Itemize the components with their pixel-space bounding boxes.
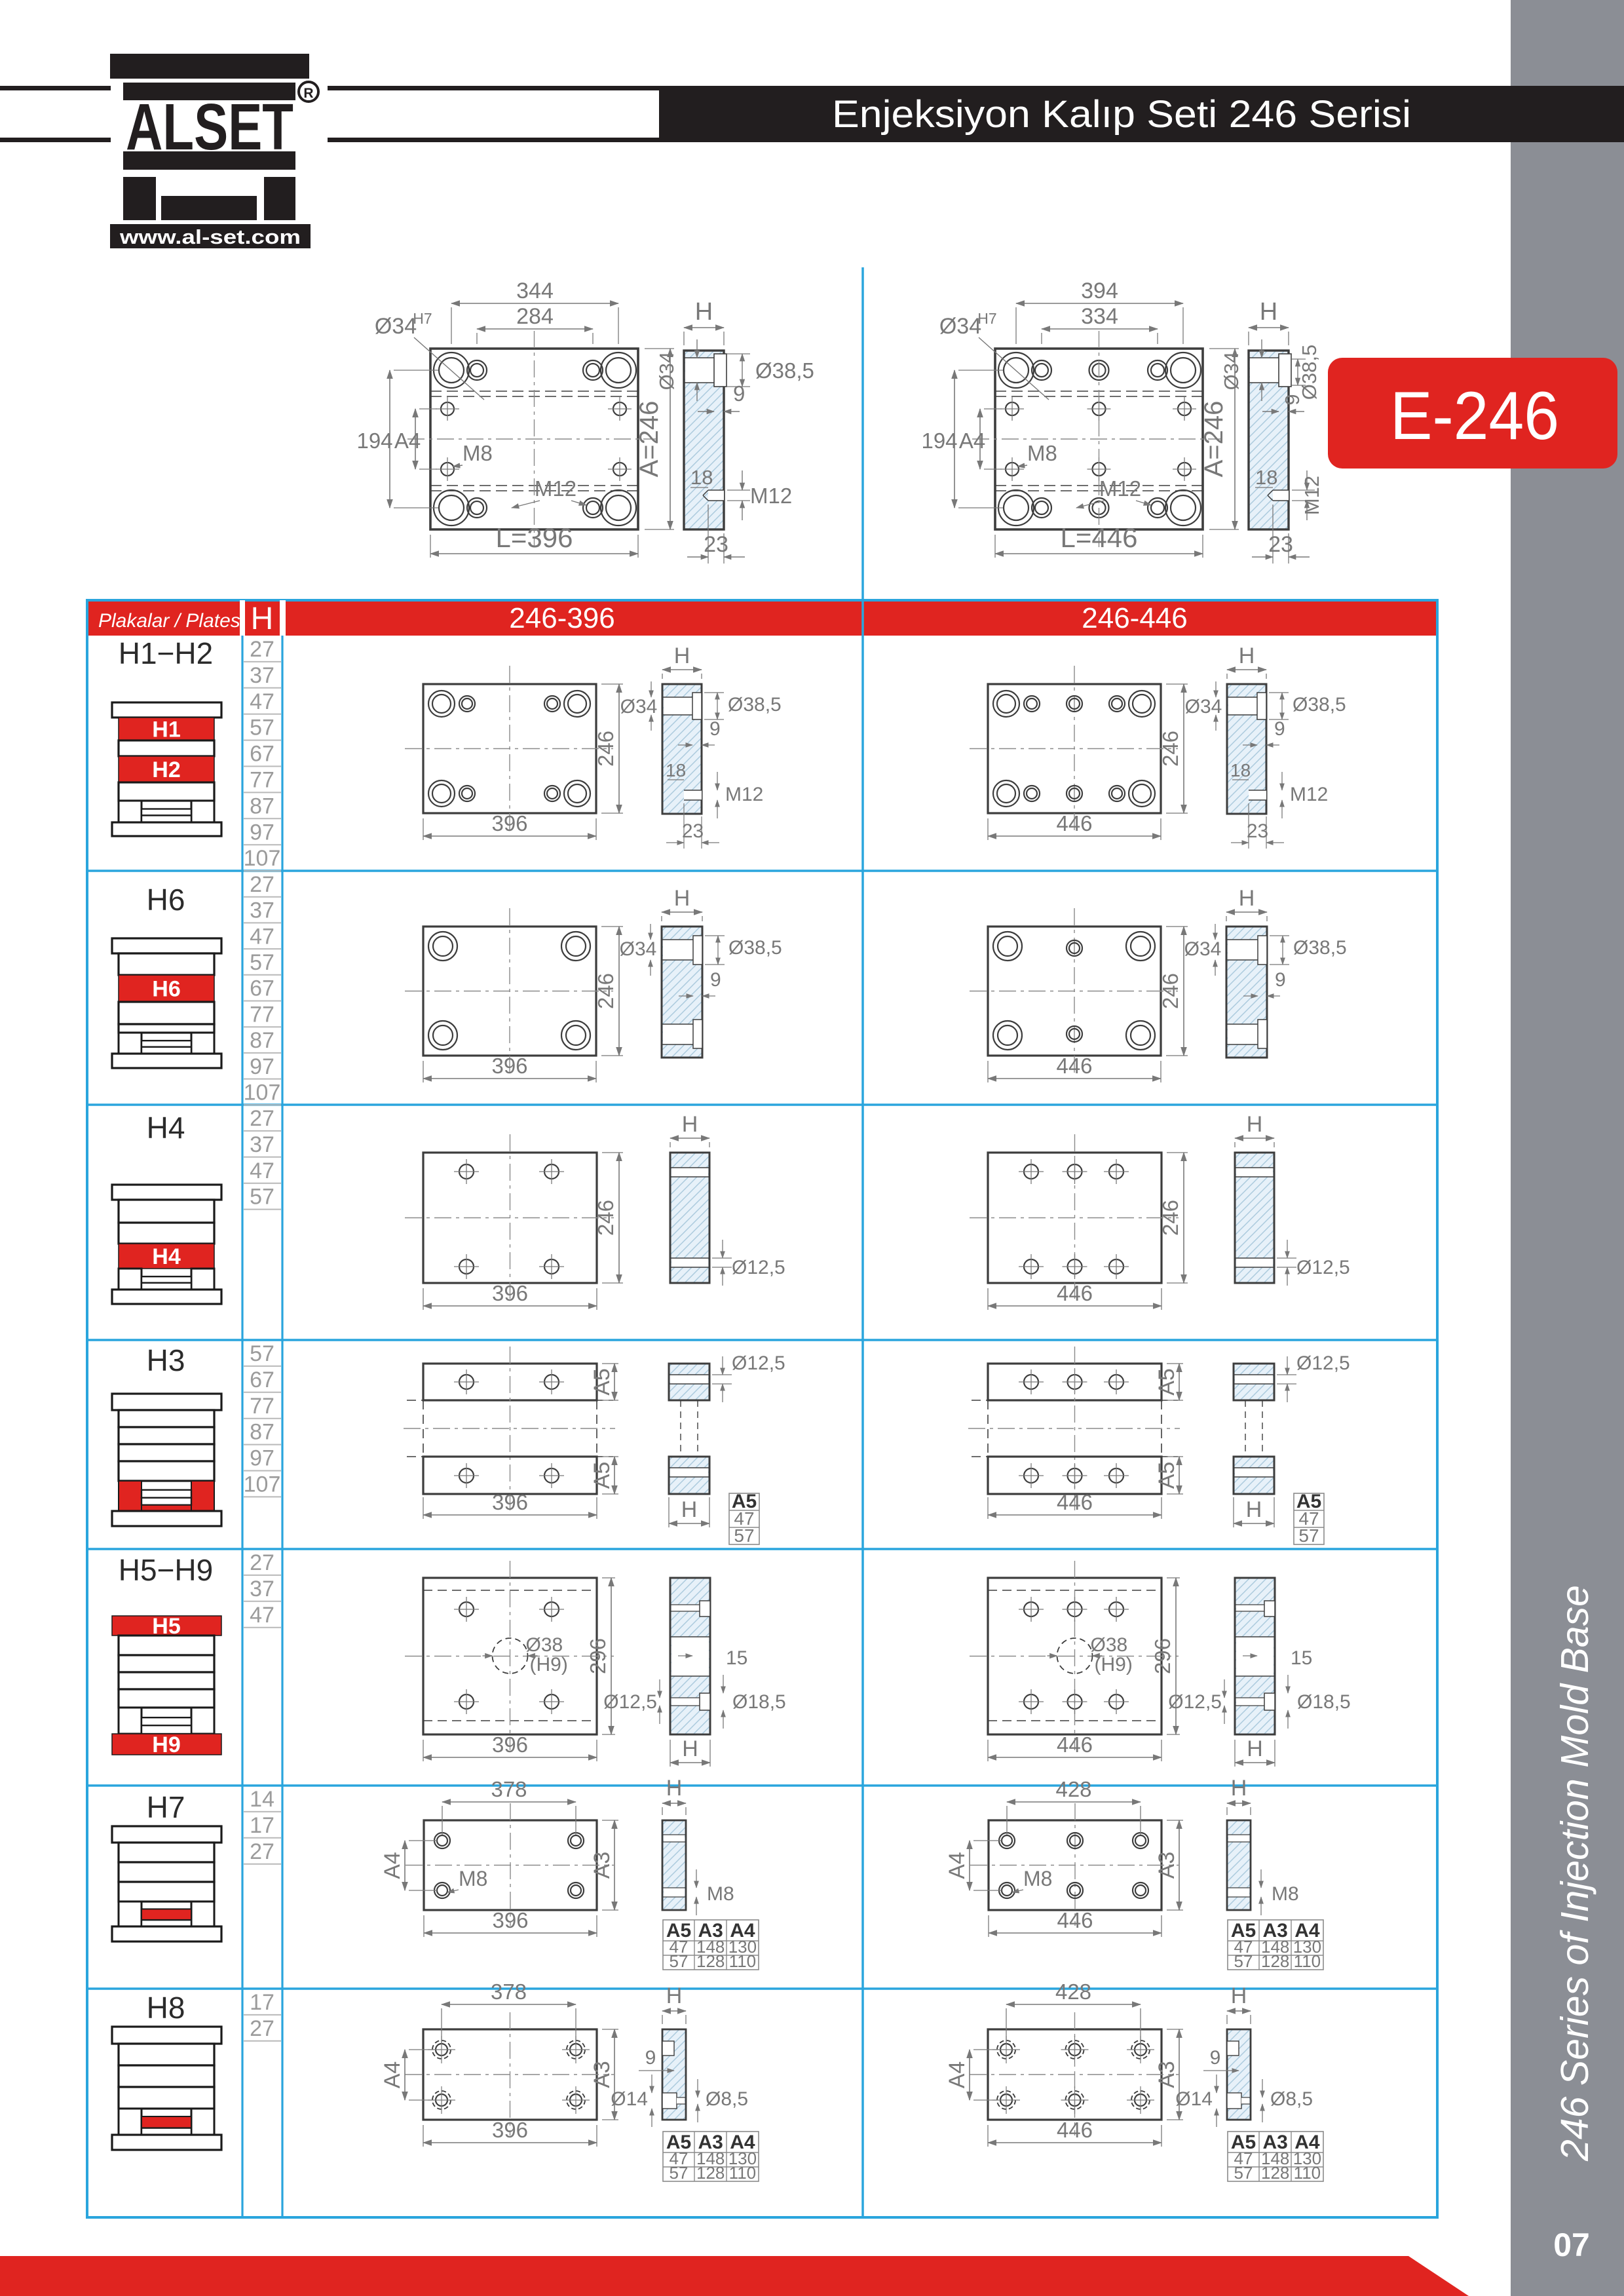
svg-text:128: 128 bbox=[1261, 2163, 1289, 2183]
svg-text:Ø12,5: Ø12,5 bbox=[1296, 1257, 1350, 1278]
svg-text:57: 57 bbox=[1234, 1951, 1253, 1971]
svg-text:446: 446 bbox=[1056, 811, 1092, 835]
svg-text:9: 9 bbox=[1275, 969, 1286, 991]
svg-text:67: 67 bbox=[250, 742, 274, 767]
svg-text:18: 18 bbox=[1255, 466, 1277, 489]
svg-text:87: 87 bbox=[250, 1420, 274, 1445]
svg-text:H9: H9 bbox=[152, 1732, 180, 1757]
svg-text:07: 07 bbox=[1553, 2227, 1590, 2263]
svg-text:M8: M8 bbox=[1023, 1867, 1052, 1890]
svg-text:Ø8,5: Ø8,5 bbox=[706, 2088, 748, 2110]
svg-text:A4: A4 bbox=[380, 1852, 405, 1879]
svg-text:246: 246 bbox=[1158, 1200, 1182, 1236]
svg-text:27: 27 bbox=[250, 637, 274, 662]
svg-text:Ø38,5: Ø38,5 bbox=[1293, 937, 1347, 959]
svg-text:378: 378 bbox=[491, 1777, 527, 1801]
svg-text:(H9): (H9) bbox=[1095, 1654, 1133, 1675]
svg-text:15: 15 bbox=[726, 1647, 747, 1669]
svg-text:Ø34: Ø34 bbox=[620, 938, 657, 960]
svg-text:Plakalar / Plates: Plakalar / Plates bbox=[98, 610, 240, 632]
svg-text:H6: H6 bbox=[147, 883, 185, 917]
svg-text:9: 9 bbox=[733, 381, 745, 406]
svg-text:246: 246 bbox=[594, 1200, 618, 1236]
svg-text:18: 18 bbox=[666, 760, 686, 780]
svg-text:57: 57 bbox=[670, 1951, 689, 1971]
svg-text:23: 23 bbox=[1268, 532, 1293, 557]
svg-text:67: 67 bbox=[250, 1368, 274, 1392]
svg-text:M8: M8 bbox=[707, 1883, 734, 1905]
svg-text:27: 27 bbox=[250, 2016, 274, 2041]
svg-text:M8: M8 bbox=[1272, 1883, 1299, 1905]
svg-text:A4: A4 bbox=[959, 429, 985, 453]
svg-text:Ø38,5: Ø38,5 bbox=[1298, 345, 1321, 400]
svg-text:Ø34: Ø34 bbox=[1184, 938, 1222, 960]
svg-text:23: 23 bbox=[1247, 820, 1268, 842]
svg-text:M8: M8 bbox=[459, 1867, 487, 1890]
svg-text:M8: M8 bbox=[1027, 441, 1057, 465]
svg-text:57: 57 bbox=[1234, 2163, 1253, 2183]
svg-text:394: 394 bbox=[1081, 278, 1118, 303]
svg-text:57: 57 bbox=[250, 1341, 274, 1366]
svg-text:A4: A4 bbox=[945, 2061, 970, 2089]
svg-text:Ø38,5: Ø38,5 bbox=[728, 937, 782, 959]
svg-text:Ø12,5: Ø12,5 bbox=[732, 1257, 785, 1278]
svg-text:87: 87 bbox=[250, 1028, 274, 1053]
svg-text:H3: H3 bbox=[147, 1343, 185, 1377]
svg-text:110: 110 bbox=[729, 1951, 756, 1971]
svg-text:A5: A5 bbox=[1154, 1368, 1179, 1396]
svg-text:H6: H6 bbox=[152, 977, 180, 1002]
svg-text:97: 97 bbox=[250, 820, 274, 845]
svg-text:A3: A3 bbox=[590, 2061, 614, 2088]
svg-text:M12: M12 bbox=[750, 484, 792, 508]
svg-text:396: 396 bbox=[491, 1054, 527, 1078]
svg-text:Ø14: Ø14 bbox=[611, 2088, 648, 2110]
svg-text:A3: A3 bbox=[1154, 1852, 1179, 1879]
svg-text:H: H bbox=[1246, 1497, 1262, 1522]
svg-text:128: 128 bbox=[696, 1951, 725, 1971]
svg-text:246 Series of Injection Mold B: 246 Series of Injection Mold Base bbox=[1553, 1585, 1596, 2162]
svg-text:37: 37 bbox=[250, 1577, 274, 1601]
svg-text:H4: H4 bbox=[147, 1111, 185, 1145]
svg-text:77: 77 bbox=[250, 767, 274, 792]
svg-text:Ø34: Ø34 bbox=[939, 314, 981, 339]
svg-text:284: 284 bbox=[516, 304, 554, 329]
svg-text:Ø38,5: Ø38,5 bbox=[755, 358, 814, 383]
svg-text:Ø34: Ø34 bbox=[620, 696, 658, 717]
svg-text:57: 57 bbox=[250, 1185, 274, 1210]
svg-text:428: 428 bbox=[1055, 1777, 1091, 1801]
svg-text:110: 110 bbox=[1294, 1951, 1321, 1971]
svg-text:Ø12,5: Ø12,5 bbox=[732, 1352, 785, 1374]
svg-text:Ø34: Ø34 bbox=[375, 314, 417, 339]
svg-text:57: 57 bbox=[670, 2163, 689, 2183]
svg-text:Ø18,5: Ø18,5 bbox=[1297, 1691, 1351, 1713]
svg-text:H: H bbox=[682, 1736, 698, 1761]
svg-text:15: 15 bbox=[1291, 1647, 1312, 1669]
svg-text:H: H bbox=[674, 643, 690, 668]
svg-text:A5: A5 bbox=[590, 1368, 614, 1396]
svg-text:(H9): (H9) bbox=[530, 1654, 568, 1675]
svg-text:194: 194 bbox=[921, 429, 957, 453]
svg-text:L=446: L=446 bbox=[1061, 522, 1138, 553]
svg-text:H: H bbox=[1231, 1776, 1247, 1801]
svg-text:H8: H8 bbox=[147, 1991, 185, 2025]
svg-text:Ø38: Ø38 bbox=[1091, 1634, 1128, 1656]
svg-text:77: 77 bbox=[250, 1394, 274, 1419]
svg-text:47: 47 bbox=[250, 924, 274, 949]
svg-text:97: 97 bbox=[250, 1054, 274, 1079]
svg-text:Ø14: Ø14 bbox=[1175, 2088, 1213, 2110]
svg-text:R: R bbox=[303, 86, 313, 101]
svg-text:H: H bbox=[674, 886, 690, 911]
svg-text:H: H bbox=[1260, 298, 1277, 326]
svg-text:A5: A5 bbox=[590, 1462, 614, 1489]
svg-text:9: 9 bbox=[709, 718, 721, 740]
svg-text:H7: H7 bbox=[977, 310, 996, 327]
svg-text:446: 446 bbox=[1057, 1732, 1093, 1757]
svg-text:L=396: L=396 bbox=[496, 522, 573, 553]
svg-text:A=246: A=246 bbox=[1199, 401, 1228, 478]
svg-text:57: 57 bbox=[250, 950, 274, 975]
svg-text:M12: M12 bbox=[725, 784, 763, 805]
svg-text:47: 47 bbox=[250, 1158, 274, 1183]
svg-text:Ø8,5: Ø8,5 bbox=[1270, 2088, 1313, 2110]
svg-text:246-396: 246-396 bbox=[509, 602, 614, 634]
svg-text:246: 246 bbox=[594, 731, 618, 767]
svg-text:77: 77 bbox=[250, 1002, 274, 1027]
svg-text:Ø38,5: Ø38,5 bbox=[1293, 694, 1346, 716]
svg-text:H7: H7 bbox=[413, 310, 432, 327]
svg-text:23: 23 bbox=[704, 532, 728, 557]
svg-text:M12: M12 bbox=[1290, 784, 1328, 805]
svg-text:9: 9 bbox=[1274, 718, 1285, 740]
svg-text:17: 17 bbox=[250, 1990, 274, 2015]
svg-text:378: 378 bbox=[491, 1980, 527, 2004]
svg-text:H: H bbox=[1239, 643, 1255, 668]
svg-text:A4: A4 bbox=[380, 2061, 405, 2089]
svg-text:Ø38,5: Ø38,5 bbox=[728, 694, 782, 716]
svg-text:H: H bbox=[695, 298, 713, 326]
svg-text:37: 37 bbox=[250, 1132, 274, 1157]
svg-text:Enjeksiyon Kalıp Seti 246 Seri: Enjeksiyon Kalıp Seti 246 Serisi bbox=[832, 93, 1411, 136]
svg-text:396: 396 bbox=[492, 1490, 528, 1514]
svg-text:M8: M8 bbox=[463, 441, 493, 465]
svg-text:9: 9 bbox=[1281, 394, 1304, 405]
svg-text:Ø38: Ø38 bbox=[526, 1634, 563, 1656]
svg-text:57: 57 bbox=[734, 1525, 754, 1546]
svg-text:H: H bbox=[251, 602, 274, 636]
svg-text:37: 37 bbox=[250, 663, 274, 688]
svg-text:428: 428 bbox=[1055, 1980, 1091, 2004]
svg-text:246-446: 246-446 bbox=[1082, 602, 1187, 634]
svg-text:9: 9 bbox=[1210, 2047, 1221, 2069]
svg-text:23: 23 bbox=[682, 820, 704, 842]
svg-text:A5: A5 bbox=[1154, 1462, 1179, 1489]
svg-text:128: 128 bbox=[696, 2163, 725, 2183]
svg-text:H: H bbox=[666, 1776, 683, 1801]
svg-text:18: 18 bbox=[1230, 760, 1251, 780]
svg-text:107: 107 bbox=[244, 1472, 281, 1497]
svg-text:M12: M12 bbox=[1300, 476, 1323, 515]
svg-text:110: 110 bbox=[1294, 2163, 1321, 2183]
svg-text:H: H bbox=[1247, 1112, 1263, 1137]
svg-text:A3: A3 bbox=[1154, 2061, 1179, 2088]
svg-text:446: 446 bbox=[1057, 1490, 1093, 1514]
svg-text:27: 27 bbox=[250, 1839, 274, 1864]
svg-text:396: 396 bbox=[492, 1908, 528, 1932]
svg-text:246: 246 bbox=[1158, 973, 1182, 1009]
svg-text:H7: H7 bbox=[147, 1790, 185, 1824]
svg-text:396: 396 bbox=[492, 2118, 528, 2142]
svg-text:396: 396 bbox=[492, 1732, 528, 1757]
svg-text:57: 57 bbox=[250, 716, 274, 740]
svg-text:17: 17 bbox=[250, 1813, 274, 1838]
svg-text:A4: A4 bbox=[394, 429, 421, 453]
svg-text:446: 446 bbox=[1056, 1054, 1092, 1078]
svg-text:Ø34: Ø34 bbox=[655, 352, 678, 391]
svg-text:H: H bbox=[682, 1112, 698, 1137]
svg-text:Ø12,5: Ø12,5 bbox=[1296, 1352, 1350, 1374]
svg-text:H: H bbox=[1231, 1983, 1247, 2008]
svg-text:87: 87 bbox=[250, 794, 274, 818]
svg-text:110: 110 bbox=[729, 2163, 756, 2183]
svg-text:H: H bbox=[681, 1497, 698, 1522]
svg-text:128: 128 bbox=[1261, 1951, 1289, 1971]
svg-text:H: H bbox=[1247, 1736, 1263, 1761]
svg-text:18: 18 bbox=[690, 466, 713, 489]
svg-text:Ø12,5: Ø12,5 bbox=[1168, 1691, 1222, 1713]
svg-text:A4: A4 bbox=[945, 1852, 970, 1879]
svg-text:H1: H1 bbox=[152, 717, 180, 742]
svg-text:Ø12,5: Ø12,5 bbox=[603, 1691, 657, 1713]
svg-text:Ø18,5: Ø18,5 bbox=[732, 1691, 786, 1713]
svg-text:67: 67 bbox=[250, 976, 274, 1001]
svg-text:47: 47 bbox=[250, 689, 274, 714]
svg-text:446: 446 bbox=[1057, 2118, 1093, 2142]
svg-text:H2: H2 bbox=[152, 757, 180, 782]
svg-text:446: 446 bbox=[1057, 1908, 1093, 1932]
svg-text:27: 27 bbox=[250, 1106, 274, 1131]
svg-text:H: H bbox=[1239, 886, 1255, 911]
svg-text:E-246: E-246 bbox=[1390, 378, 1559, 454]
svg-text:107: 107 bbox=[244, 1080, 281, 1105]
svg-text:27: 27 bbox=[250, 872, 274, 897]
svg-text:H: H bbox=[666, 1983, 683, 2008]
svg-text:107: 107 bbox=[244, 846, 281, 871]
svg-text:396: 396 bbox=[492, 1281, 528, 1305]
svg-text:334: 334 bbox=[1081, 304, 1118, 329]
svg-text:www.al-set.com: www.al-set.com bbox=[119, 225, 301, 248]
svg-text:37: 37 bbox=[250, 898, 274, 923]
svg-text:Ø34: Ø34 bbox=[1185, 696, 1222, 717]
svg-text:396: 396 bbox=[491, 811, 527, 835]
svg-text:296: 296 bbox=[1150, 1638, 1175, 1674]
svg-text:M12: M12 bbox=[1099, 476, 1141, 501]
svg-text:A=246: A=246 bbox=[635, 401, 664, 478]
svg-text:14: 14 bbox=[250, 1787, 274, 1812]
svg-text:A3: A3 bbox=[590, 1852, 614, 1879]
svg-text:296: 296 bbox=[586, 1638, 610, 1674]
svg-text:H5−H9: H5−H9 bbox=[119, 1553, 213, 1587]
svg-text:194: 194 bbox=[356, 429, 392, 453]
svg-text:344: 344 bbox=[516, 278, 554, 303]
svg-text:246: 246 bbox=[594, 973, 618, 1009]
svg-text:H1−H2: H1−H2 bbox=[119, 636, 213, 670]
svg-text:Ø34: Ø34 bbox=[1220, 352, 1243, 391]
svg-text:246: 246 bbox=[1158, 731, 1182, 767]
svg-text:446: 446 bbox=[1057, 1281, 1093, 1305]
svg-text:47: 47 bbox=[250, 1603, 274, 1628]
svg-text:M12: M12 bbox=[535, 476, 576, 501]
svg-text:9: 9 bbox=[710, 969, 721, 991]
svg-text:H4: H4 bbox=[152, 1244, 181, 1269]
svg-text:57: 57 bbox=[1298, 1525, 1319, 1546]
svg-text:9: 9 bbox=[645, 2047, 656, 2069]
svg-text:97: 97 bbox=[250, 1446, 274, 1471]
svg-text:27: 27 bbox=[250, 1550, 274, 1575]
